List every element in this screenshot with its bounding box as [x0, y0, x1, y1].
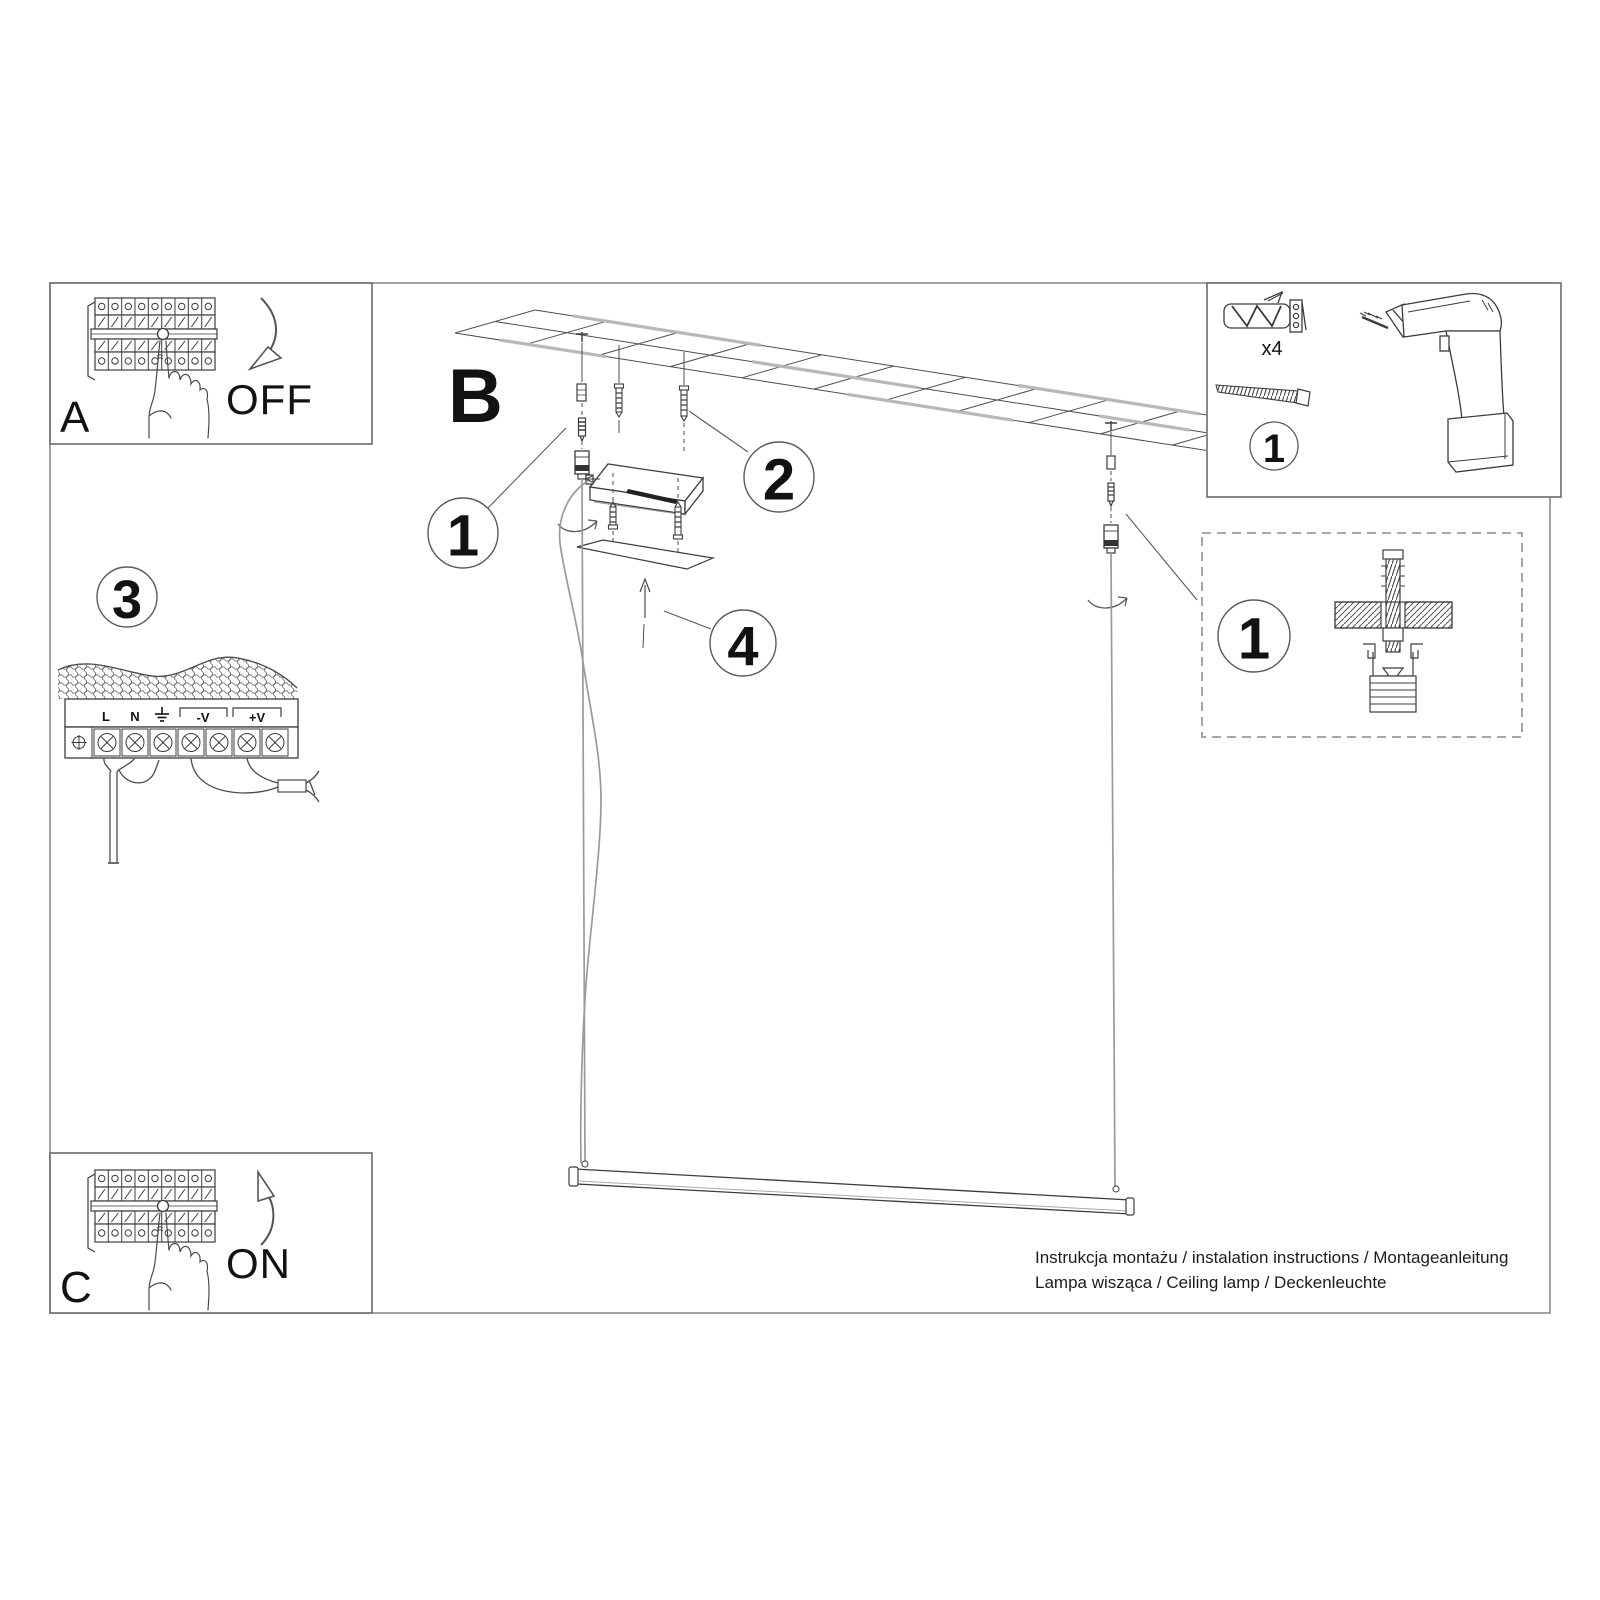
panel-breaker-on: C ON: [50, 1153, 372, 1313]
instruction-sheet: A OFF C ON 3 L N -V +V: [0, 0, 1600, 1600]
diffuser-band: [58, 657, 297, 699]
rotate-arrow-right-icon: [1088, 597, 1127, 608]
footer-line2: Lampa wisząca / Ceiling lamp / Deckenleu…: [1035, 1273, 1387, 1292]
svg-text:2: 2: [763, 448, 795, 513]
cover-screw-right: [680, 352, 689, 453]
off-label: OFF: [226, 376, 313, 423]
cable-loop-left: [582, 1161, 588, 1167]
terminal-negative-label: -V: [197, 710, 210, 725]
main-illustration: B: [428, 310, 1290, 1215]
leader-anchor-detail: [1126, 514, 1197, 600]
footer-line1: Instrukcja montażu / instalation instruc…: [1035, 1248, 1508, 1267]
footer: Instrukcja montażu / instalation instruc…: [1035, 1248, 1508, 1292]
terminal-positive-label: +V: [249, 710, 266, 725]
terminal-wires: [104, 758, 319, 863]
hardware-step-number: 1: [1263, 427, 1285, 471]
step-3-number: 3: [112, 570, 142, 630]
quantity-label: x4: [1261, 338, 1282, 360]
cover-plate: [577, 540, 713, 569]
right-suspension: [1104, 421, 1118, 553]
panel-hardware: x4 1: [1207, 283, 1561, 497]
panel-anchor-detail: 1: [1202, 533, 1522, 737]
instruction-drawing: A OFF C ON 3 L N -V +V: [0, 0, 1600, 1600]
callout-1: 1: [428, 428, 566, 569]
svg-text:4: 4: [727, 615, 758, 678]
terminal-live-label: L: [102, 709, 110, 724]
panel-breaker-off: A OFF: [50, 283, 372, 444]
lamp-bar: [569, 1167, 1134, 1215]
cable-loop-right: [1113, 1186, 1119, 1192]
step-c-label: C: [60, 1263, 92, 1312]
step-b-label: B: [448, 354, 503, 439]
callout-2: 2: [689, 411, 814, 513]
rotate-arrow-left-icon: [558, 520, 597, 532]
svg-text:1: 1: [447, 504, 479, 569]
driver-box: [586, 464, 703, 515]
on-label: ON: [226, 1240, 291, 1287]
step-a-label: A: [60, 393, 90, 442]
up-arrow-icon: [640, 579, 650, 648]
terminal-neutral-label: N: [130, 709, 139, 724]
anchor-detail-number: 1: [1238, 607, 1270, 672]
callout-4: 4: [664, 610, 776, 678]
panel-wiring: 3 L N -V +V: [58, 567, 319, 863]
